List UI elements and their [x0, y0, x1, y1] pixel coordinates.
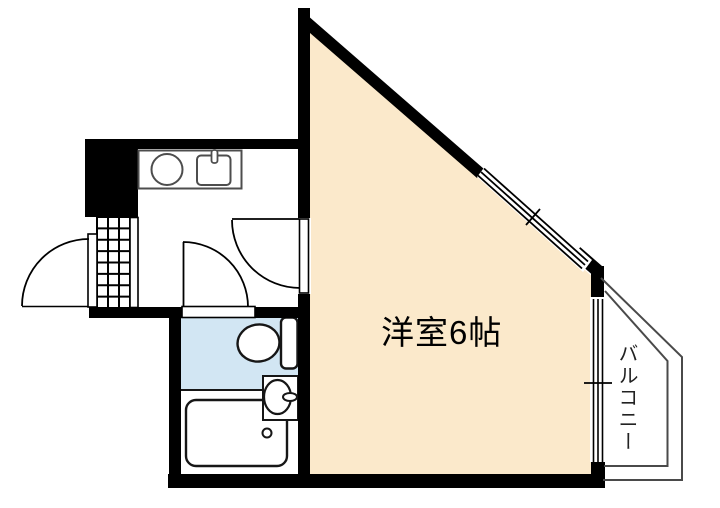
genkan-step-strip — [130, 218, 138, 308]
entrance-door-leaf — [88, 234, 97, 307]
washbasin-tap-icon — [283, 393, 297, 401]
kitchen-faucet-icon — [212, 150, 218, 163]
floorplan: 洋室6帖 バルコニー — [0, 0, 720, 508]
wall-main-left-lower — [298, 293, 310, 478]
wall-main-left-upper — [298, 8, 310, 219]
floorplan-drawing — [0, 0, 720, 508]
door-leaf — [300, 219, 309, 293]
wall-bottom — [168, 474, 605, 488]
balcony-label: バルコニー — [616, 343, 636, 469]
door-leaf — [182, 307, 255, 318]
bathtub-drain-icon — [263, 429, 272, 438]
wall-block-entry — [85, 139, 138, 217]
toilet-tank-icon — [281, 318, 298, 369]
stove-burner-icon — [152, 154, 183, 185]
kitchen — [139, 150, 242, 189]
wall-bathroom-left — [169, 307, 181, 488]
main-room-label: 洋室6帖 — [381, 306, 502, 354]
